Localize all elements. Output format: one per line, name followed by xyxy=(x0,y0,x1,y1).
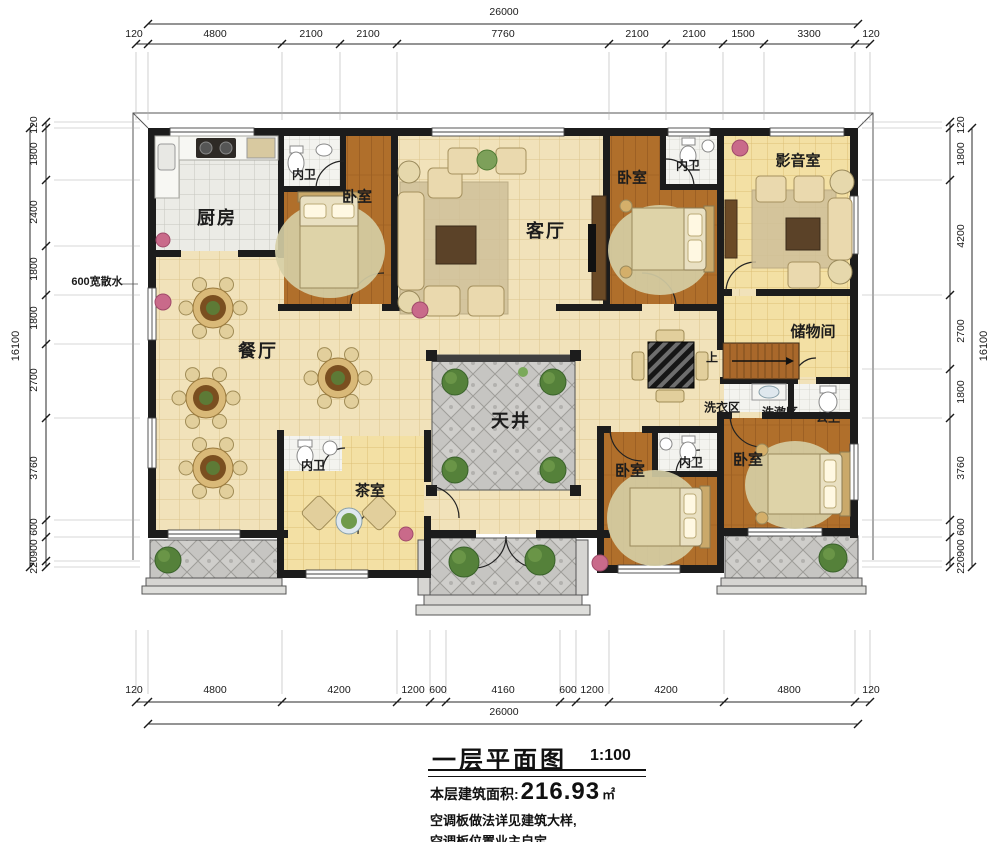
window xyxy=(306,570,368,578)
flowers xyxy=(155,294,171,310)
dim-left-1: 1800 xyxy=(28,132,40,176)
entrance-side-step xyxy=(576,540,588,595)
room-label-laundry: 洗衣区 xyxy=(704,399,740,416)
dim-top-4: 7760 xyxy=(473,28,533,40)
dim-line-top-segments xyxy=(132,40,874,120)
porch-right-step xyxy=(717,586,866,594)
dim-bottom-5: 4160 xyxy=(473,684,533,696)
porch-left-step xyxy=(142,586,286,594)
dim-bottom-8: 4200 xyxy=(636,684,696,696)
basin xyxy=(660,438,672,450)
dim-top-3: 2100 xyxy=(338,28,398,40)
tv xyxy=(588,224,596,272)
dim-left-4: 1800 xyxy=(28,296,40,340)
kitchen-sink xyxy=(158,144,175,170)
floor-plan-sheet: 26000 120 4800 2100 2100 7760 2100 2100 … xyxy=(0,0,1000,842)
window xyxy=(148,288,156,340)
dim-line-left-segments xyxy=(42,118,140,571)
dim-bottom-total: 26000 xyxy=(474,706,534,718)
entrance-step xyxy=(416,605,590,615)
dim-right-1: 1800 xyxy=(955,132,967,176)
dim-bottom-7: 1200 xyxy=(562,684,622,696)
room-label-tea: 茶室 xyxy=(355,480,385,501)
dim-top-0: 120 xyxy=(104,28,164,40)
note-ac-panel-position: 空调板位置业主自定 xyxy=(430,831,547,842)
stairs xyxy=(723,343,799,379)
dim-right-3: 2700 xyxy=(955,309,967,353)
dim-left-6: 3760 xyxy=(28,446,40,490)
dim-left-total: 16100 xyxy=(10,316,22,376)
dim-top-total: 26000 xyxy=(474,6,534,18)
window xyxy=(168,530,240,538)
room-label-kitchen: 厨房 xyxy=(197,204,237,230)
flowers xyxy=(732,140,748,156)
chair xyxy=(496,148,526,174)
dim-right-5: 3760 xyxy=(955,446,967,490)
dim-bottom-1: 4800 xyxy=(185,684,245,696)
porch-right-step xyxy=(721,578,862,586)
dim-left-9: 220 xyxy=(28,543,40,587)
room-label-ensuite-tl: 内卫 xyxy=(292,166,316,183)
room-label-living: 客厅 xyxy=(526,217,566,243)
room-label-media: 影音室 xyxy=(775,150,820,171)
basin xyxy=(316,144,332,156)
dim-top-5: 2100 xyxy=(607,28,667,40)
window xyxy=(170,128,254,136)
window xyxy=(850,444,858,500)
window xyxy=(668,128,710,136)
sofa xyxy=(398,192,424,290)
armchair xyxy=(468,286,504,316)
dim-line-right-total xyxy=(968,124,976,571)
basin xyxy=(323,441,337,455)
room-label-public-bath: 公卫 xyxy=(816,409,840,426)
room-label-dining: 餐厅 xyxy=(238,337,278,363)
dim-top-7: 1500 xyxy=(713,28,773,40)
room-label-courtyard: 天井 xyxy=(491,407,531,433)
armchair xyxy=(424,286,460,316)
room-label-bedroom-tr: 卧室 xyxy=(617,167,647,188)
note-ac-panel-detail: 空调板做法详见建筑大样, xyxy=(430,810,577,829)
floor-area-row: 本层建筑面积: 216.93 ㎡ xyxy=(430,778,615,806)
sheet-scale: 1:100 xyxy=(590,747,631,765)
dim-line-top-total xyxy=(144,20,862,28)
flowers xyxy=(399,527,413,541)
apron-label: 600宽散水 xyxy=(71,273,122,289)
room-label-storage: 储物间 xyxy=(790,321,835,342)
coffee-table xyxy=(436,226,476,264)
dim-bottom-10: 120 xyxy=(841,684,901,696)
dim-line-bottom-total xyxy=(144,720,862,728)
floor-area-label: 本层建筑面积: xyxy=(430,784,519,804)
porch-left-step xyxy=(146,578,282,586)
window xyxy=(618,565,680,573)
dim-right-total: 16100 xyxy=(978,316,990,376)
basin xyxy=(702,140,714,152)
room-label-ensuite-tr: 内卫 xyxy=(676,157,700,174)
dim-right-2: 4200 xyxy=(955,214,967,258)
room-label-ensuite-b: 内卫 xyxy=(679,454,703,471)
title-underline xyxy=(428,769,646,777)
room-label-bedroom-tl: 卧室 xyxy=(342,186,372,207)
floor-area-value: 216.93 xyxy=(521,778,600,806)
dim-top-2: 2100 xyxy=(281,28,341,40)
dim-top-9: 120 xyxy=(841,28,901,40)
dim-bottom-9: 4800 xyxy=(759,684,819,696)
window xyxy=(748,528,822,536)
dim-right-8: 220 xyxy=(955,543,967,587)
chair xyxy=(448,148,478,174)
floor-area-unit: ㎡ xyxy=(602,784,615,803)
dim-right-4: 1800 xyxy=(955,370,967,414)
dim-top-8: 3300 xyxy=(779,28,839,40)
dim-left-3: 1800 xyxy=(28,247,40,291)
flowers xyxy=(592,555,608,571)
window xyxy=(148,418,156,468)
dim-left-5: 2700 xyxy=(28,358,40,402)
plant xyxy=(477,150,497,170)
window xyxy=(770,128,844,136)
entrance-step xyxy=(424,595,582,605)
flowers xyxy=(412,302,428,318)
stairs-up-label: 上 xyxy=(706,349,718,366)
room-label-bedroom-b1: 卧室 xyxy=(615,460,645,481)
room-label-ensuite-tea: 内卫 xyxy=(301,457,325,474)
wash-basin xyxy=(759,386,779,398)
dim-line-right-segments xyxy=(862,118,954,571)
flowers xyxy=(156,233,170,247)
dim-bottom-2: 4200 xyxy=(309,684,369,696)
room-label-bedroom-b2: 卧室 xyxy=(733,449,763,470)
window xyxy=(432,128,564,136)
dim-bottom-4: 600 xyxy=(408,684,468,696)
dim-bottom-0: 120 xyxy=(104,684,164,696)
dim-top-1: 4800 xyxy=(185,28,245,40)
room-label-wash: 洗漱区 xyxy=(762,404,798,421)
dim-left-2: 2400 xyxy=(28,190,40,234)
